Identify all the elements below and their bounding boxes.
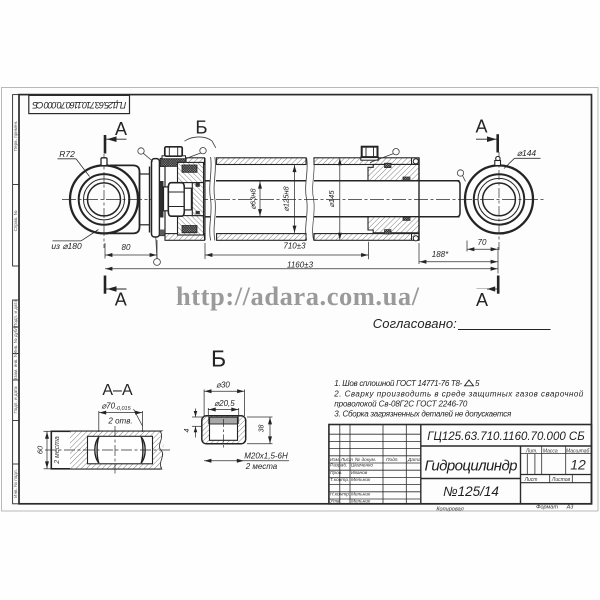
svg-text:⌀20,5: ⌀20,5 — [214, 399, 235, 408]
svg-text:проволокой Св-08Г2С ГОСТ 2246-: проволокой Св-08Г2С ГОСТ 2246-70 — [334, 400, 468, 409]
svg-text:Справ. №: Справ. № — [13, 211, 18, 232]
svg-text:из ⌀180: из ⌀180 — [51, 241, 82, 251]
svg-text:38: 38 — [259, 425, 266, 433]
svg-text:Мельник: Мельник — [351, 477, 371, 483]
svg-text:А–А: А–А — [102, 382, 133, 399]
svg-text:А: А — [115, 290, 127, 310]
svg-text:Изм.: Изм. — [330, 457, 340, 463]
svg-text:2. Сварку производить в среде: 2. Сварку производить в среде защитных г… — [333, 389, 584, 398]
svg-text:Подп. и дата: Подп. и дата — [13, 386, 18, 414]
svg-text:⌀145: ⌀145 — [327, 190, 336, 208]
svg-text:Разраб.: Разраб. — [330, 463, 347, 469]
svg-text:Подп.: Подп. — [386, 457, 399, 463]
svg-text:80: 80 — [122, 243, 131, 252]
svg-text:Масса: Масса — [543, 448, 558, 454]
svg-text:М20х1,5-6Н: М20х1,5-6Н — [244, 451, 288, 460]
svg-text:Б: Б — [195, 117, 207, 138]
svg-text:5: 5 — [475, 379, 480, 388]
svg-text:Согласовано:: Согласовано: — [373, 316, 457, 331]
svg-text:Подп. и дата: Подп. и дата — [13, 300, 18, 328]
svg-text:1160±3: 1160±3 — [287, 260, 314, 269]
svg-text:R72: R72 — [59, 149, 75, 159]
svg-text:⌀125н8: ⌀125н8 — [282, 186, 291, 212]
svg-text:Инв. № подл.: Инв. № подл. — [13, 469, 18, 498]
svg-text:Т.контр.: Т.контр. — [330, 477, 349, 483]
svg-text:2 места: 2 места — [54, 436, 61, 465]
svg-text:Формат: Формат — [536, 505, 558, 511]
svg-text:Лист: Лист — [340, 457, 353, 463]
svg-text:Иванов: Иванов — [351, 470, 368, 476]
svg-text:⌀144: ⌀144 — [517, 148, 537, 158]
svg-text:Масштаб: Масштаб — [566, 448, 590, 454]
svg-text:Взам. инв. №: Взам. инв. № — [13, 352, 18, 381]
svg-text:Дата: Дата — [407, 457, 421, 463]
svg-text:Шевченко: Шевченко — [351, 463, 373, 469]
svg-text:2 места: 2 места — [245, 462, 278, 471]
svg-text:№ докум.: № докум. — [355, 457, 376, 463]
svg-text:А: А — [115, 119, 127, 139]
svg-text:№125/14: №125/14 — [443, 484, 499, 499]
svg-text:Мельник: Мельник — [351, 492, 371, 498]
svg-text:60: 60 — [36, 445, 45, 454]
svg-text:Перв. примен.: Перв. примен. — [13, 121, 18, 152]
svg-text:1. Шов сплошной ГОСТ 14771-76: 1. Шов сплошной ГОСТ 14771-76 Т8- — [334, 379, 462, 388]
svg-text:70: 70 — [478, 238, 487, 247]
svg-text:3. Сборка загрязненных деталей: 3. Сборка загрязненных деталей не допуск… — [334, 409, 512, 418]
svg-text:Мельник: Мельник — [351, 499, 371, 505]
svg-text:А: А — [476, 290, 488, 310]
svg-text:2 отв.: 2 отв. — [107, 416, 132, 425]
svg-text:Б: Б — [211, 346, 226, 372]
svg-text:Инв. № дубл.: Инв. № дубл. — [13, 326, 18, 354]
svg-text:Н.контр.: Н.контр. — [330, 492, 350, 498]
svg-text:Копировал: Копировал — [436, 507, 463, 513]
svg-text:⌀63н8: ⌀63н8 — [249, 188, 258, 210]
svg-text:Пров.: Пров. — [330, 470, 343, 476]
svg-text:Лит.: Лит. — [525, 448, 538, 454]
svg-text:Листов: Листов — [551, 477, 571, 483]
svg-text:ГЦ125.63.710.1160.70.000 СБ: ГЦ125.63.710.1160.70.000 СБ — [32, 100, 126, 110]
svg-text:188*: 188* — [432, 250, 449, 259]
svg-text:А: А — [475, 117, 487, 137]
svg-text:⌀30: ⌀30 — [216, 381, 230, 390]
svg-text:ГЦ125.63.710.1160.70.000 СБ: ГЦ125.63.710.1160.70.000 СБ — [427, 431, 585, 443]
svg-text:Гидроцилиндр: Гидроцилиндр — [425, 458, 518, 475]
svg-text:А3: А3 — [566, 505, 575, 511]
svg-text:Утв.: Утв. — [330, 499, 341, 505]
svg-text:http://adara.com.ua/: http://adara.com.ua/ — [176, 281, 420, 311]
svg-text:12: 12 — [570, 457, 586, 473]
svg-text:710±3: 710±3 — [283, 241, 306, 250]
svg-text:Лист: Лист — [524, 477, 538, 483]
svg-text:4: 4 — [184, 428, 191, 432]
